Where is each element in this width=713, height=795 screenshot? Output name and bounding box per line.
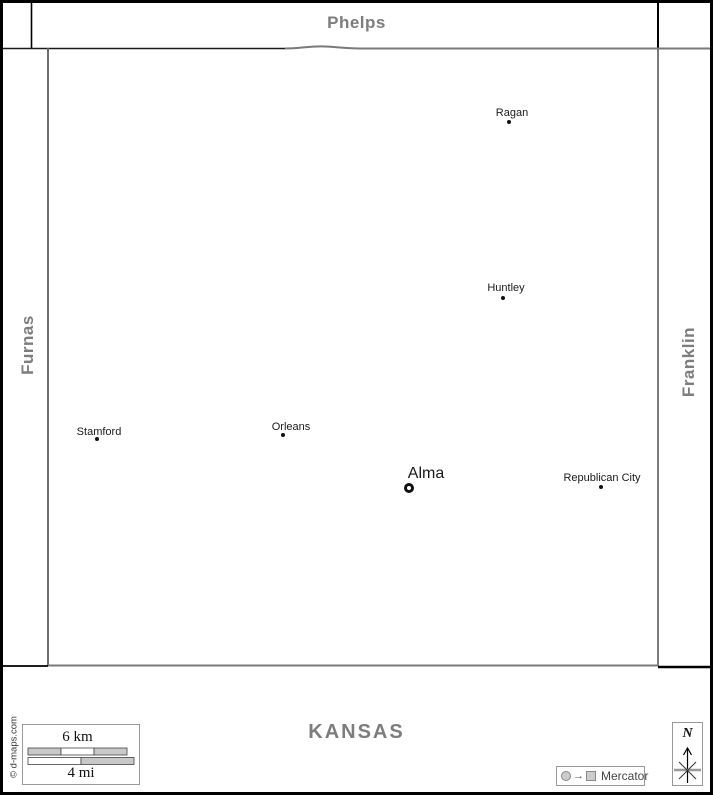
right-arrow-icon: → [573,771,584,782]
town-label: Alma [408,465,444,483]
town-marker [507,120,511,124]
projection-legend: → Mercator [556,766,645,786]
scale-mi-label: 4 mi [28,765,134,782]
town-label: Stamford [77,426,122,438]
neighbor-county-east-label: Franklin [679,327,699,397]
labels-overlay: Phelps Furnas Franklin KANSAS RaganHuntl… [0,0,713,795]
town-marker [501,296,505,300]
county-map: Phelps Furnas Franklin KANSAS RaganHuntl… [0,0,713,795]
neighbor-county-north-label: Phelps [0,13,713,33]
town-marker [599,485,603,489]
projection-name: Mercator [601,769,648,783]
town-label: Republican City [563,472,640,484]
county-seat-marker [404,483,414,493]
scale-km-label: 6 km [28,729,127,746]
town-label: Ragan [496,107,528,119]
neighbor-county-west-label: Furnas [18,315,38,375]
globe-circle-icon [561,771,571,781]
flat-map-square-icon [586,771,596,781]
compass-north-label: N [672,726,703,742]
town-label: Huntley [487,282,524,294]
copyright-credit: © d-maps.com [9,716,20,778]
town-label: Orleans [272,421,311,433]
town-marker [281,433,285,437]
